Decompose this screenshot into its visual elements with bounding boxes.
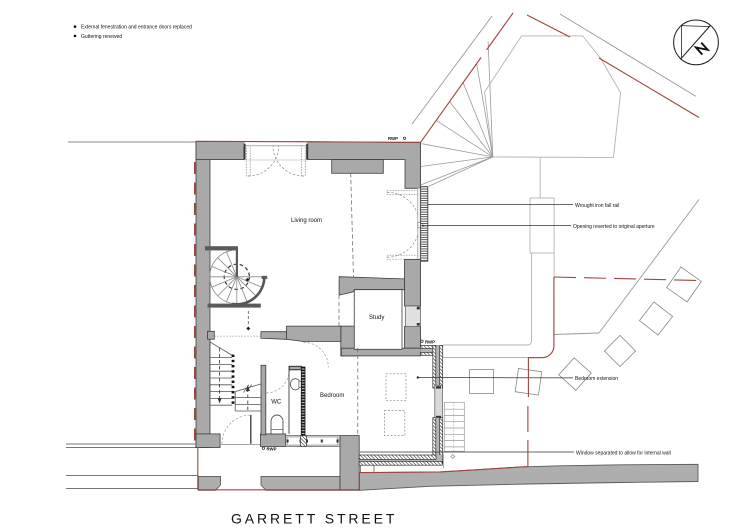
svg-text:Bedroom extension: Bedroom extension xyxy=(575,376,618,382)
svg-text:Window separated to allow for: Window separated to allow for internal w… xyxy=(576,451,671,457)
svg-text:WC: WC xyxy=(271,400,282,406)
svg-text:GARRETT STREET: GARRETT STREET xyxy=(231,511,397,527)
svg-text:Wrought iron fall rail: Wrought iron fall rail xyxy=(575,203,619,209)
svg-text:Study: Study xyxy=(369,315,384,321)
svg-text:External fenestration and entr: External fenestration and entrance doors… xyxy=(81,25,192,31)
svg-text:Opening reverted to original a: Opening reverted to original aperture xyxy=(573,224,655,230)
svg-text:Guttering renewed: Guttering renewed xyxy=(81,34,122,40)
svg-text:RWP: RWP xyxy=(267,447,277,452)
svg-text:Living room: Living room xyxy=(291,218,322,224)
svg-text:RWP: RWP xyxy=(425,340,435,345)
svg-text:Bedroom: Bedroom xyxy=(320,393,344,399)
svg-text:RWP: RWP xyxy=(388,136,398,141)
